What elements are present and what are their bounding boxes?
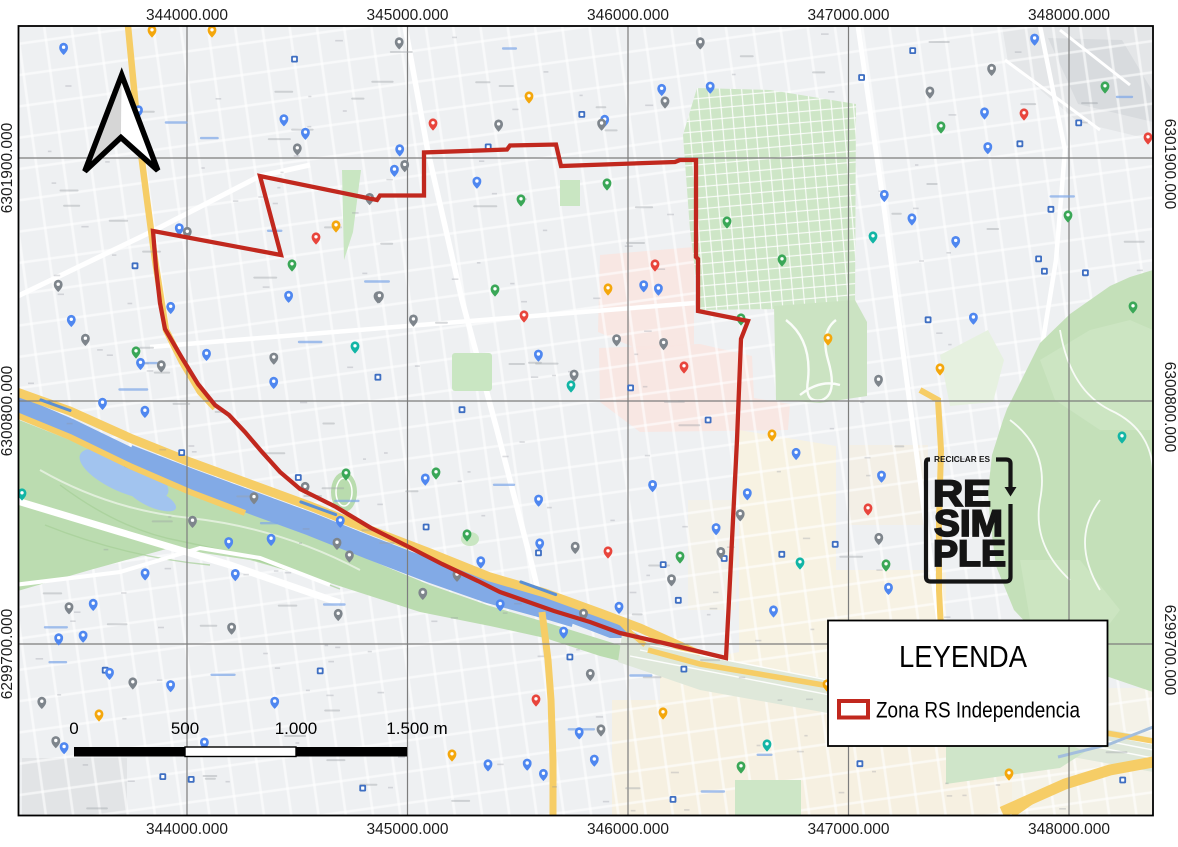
svg-text:344000.000: 344000.000 (146, 7, 228, 24)
svg-text:0: 0 (69, 719, 78, 738)
svg-text:348000.000: 348000.000 (1028, 7, 1110, 24)
svg-text:347000.000: 347000.000 (808, 821, 890, 838)
svg-text:345000.000: 345000.000 (367, 7, 449, 24)
svg-text:346000.000: 346000.000 (587, 821, 669, 838)
svg-text:RECICLAR ES: RECICLAR ES (934, 455, 991, 464)
svg-text:LEYENDA: LEYENDA (899, 639, 1027, 674)
svg-text:Zona RS Independencia: Zona RS Independencia (876, 698, 1081, 723)
svg-text:344000.000: 344000.000 (146, 821, 228, 838)
svg-text:346000.000: 346000.000 (587, 7, 669, 24)
svg-text:1.500 m: 1.500 m (386, 719, 447, 738)
svg-text:6301900.000: 6301900.000 (1161, 119, 1178, 210)
svg-text:345000.000: 345000.000 (367, 821, 449, 838)
svg-text:348000.000: 348000.000 (1028, 821, 1110, 838)
svg-text:6301900.000: 6301900.000 (0, 122, 16, 213)
svg-text:6300800.000: 6300800.000 (0, 365, 16, 456)
svg-text:500: 500 (171, 719, 199, 738)
svg-text:347000.000: 347000.000 (808, 7, 890, 24)
svg-text:6299700.000: 6299700.000 (1161, 605, 1178, 696)
svg-text:6300800.000: 6300800.000 (1161, 362, 1178, 453)
svg-text:PLE: PLE (933, 533, 1006, 574)
svg-text:6299700.000: 6299700.000 (0, 608, 16, 699)
svg-text:1.000: 1.000 (275, 719, 318, 738)
